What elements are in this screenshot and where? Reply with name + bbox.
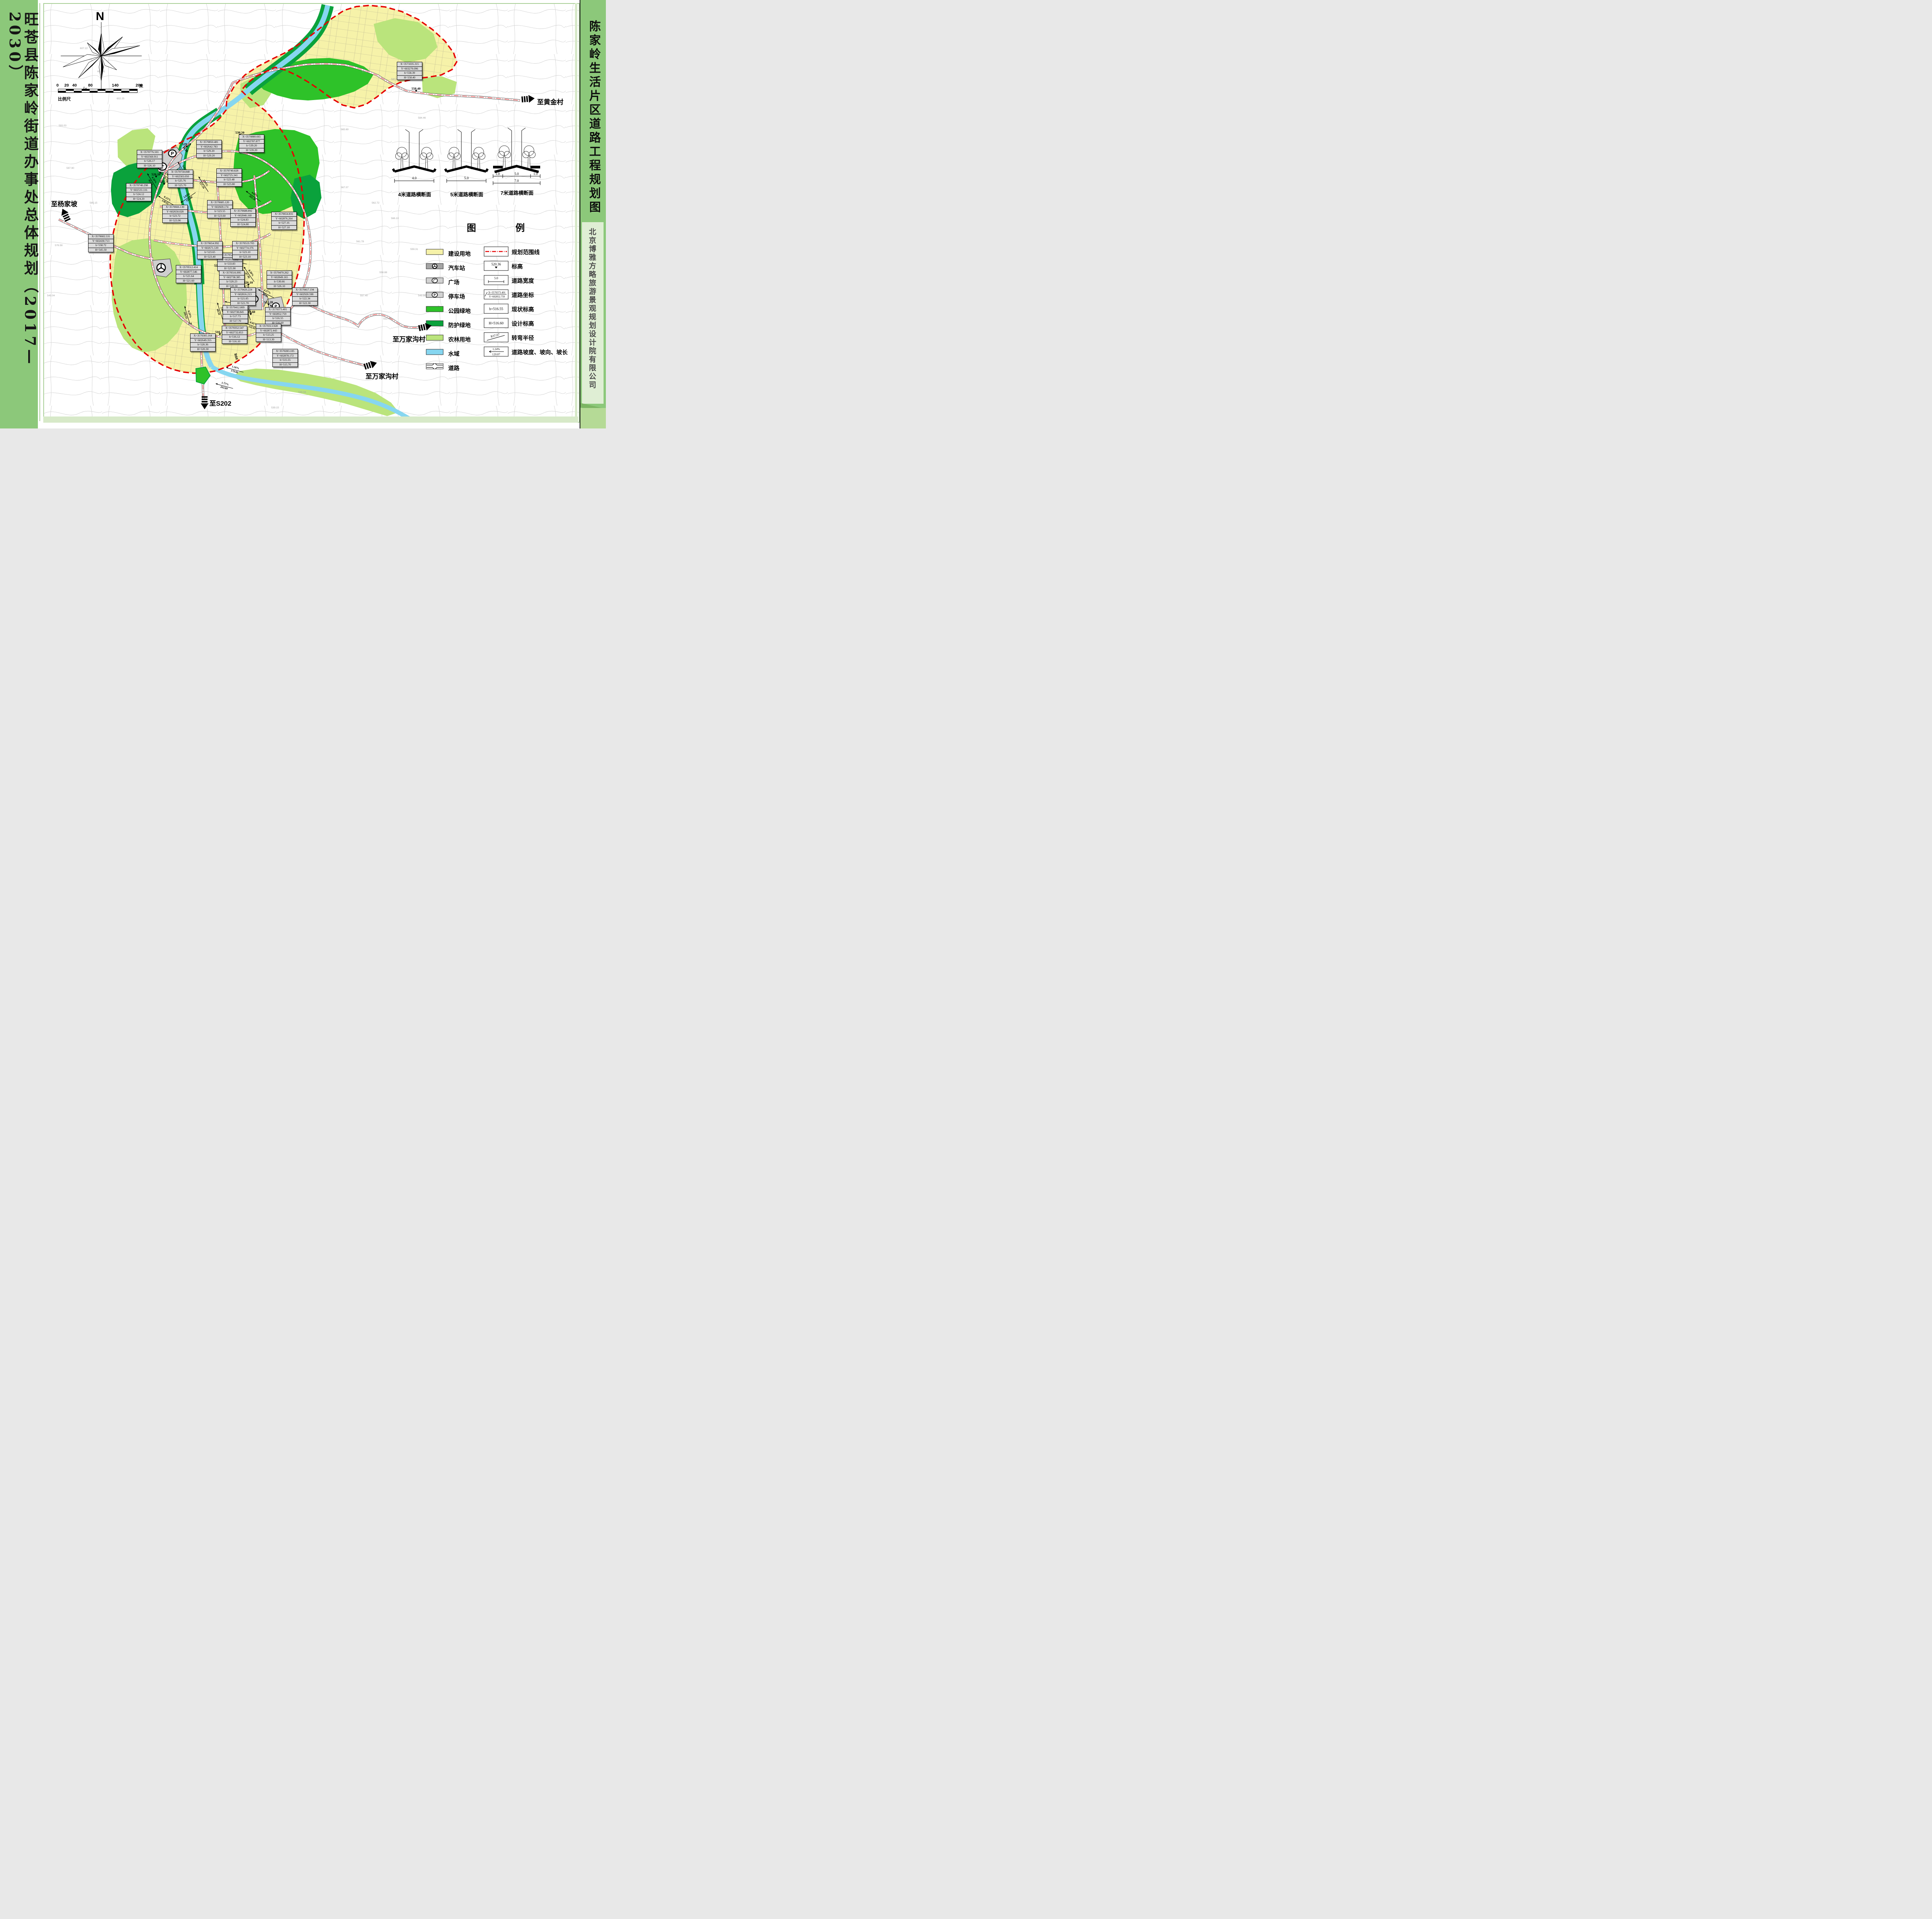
coordinate-box: X=3570688.892Y=602848.168h=524.83H=524.8… <box>230 209 256 227</box>
coordinate-box-row: h=523.48 <box>217 177 241 182</box>
coordinate-box-row: Y=602669.174 <box>207 205 232 209</box>
terrain-elevation-label: 559.31 <box>410 248 418 251</box>
coordinate-box-row: h=523.72 <box>163 214 187 218</box>
coordinate-box-row: h=558.39 <box>397 71 422 75</box>
coordinate-box: X=3570412.809Y=602738.845h=517.73H=517.7… <box>223 305 248 323</box>
svg-text:Y=602852.759: Y=602852.759 <box>489 296 505 298</box>
legend-swatch-parking: P <box>426 292 444 300</box>
legend-swatch-agro-forest <box>426 335 444 343</box>
coordinate-box-row: h=527.16 <box>272 221 296 225</box>
coordinate-box: X=3570740.298Y=602533.116h=524.12H=524.2… <box>126 183 151 201</box>
coordinate-box-row: X=3570602.531 <box>88 235 113 239</box>
coordinate-box-row: X=3571035.315 <box>397 62 422 66</box>
terrain-elevation-label: 576.58 <box>55 244 63 247</box>
legend-label: 道路宽度 <box>512 277 534 285</box>
terrain-elevation-label: 593.03 <box>59 124 66 127</box>
coordinate-box-row: h=524.83 <box>231 218 255 222</box>
legend-label: 转弯半径 <box>512 334 534 342</box>
corner-decoration-light <box>580 408 606 428</box>
coordinate-box-row: h=515.55 <box>273 358 298 362</box>
legend-item-turning-radius: R37.07转弯半径 <box>484 332 577 342</box>
coordinate-box-row: H=517.70 <box>223 319 248 323</box>
coordinate-box-row: H=513.30 <box>256 337 281 342</box>
coordinate-box-row: X=3570740.298 <box>126 184 151 188</box>
legend-item-road-coordinate: X=3570373.401Y=602852.759道路坐标 <box>484 289 577 299</box>
spot-elevation-value: 526.10 <box>151 172 160 176</box>
coordinate-box-row: H=516.10 <box>222 339 247 344</box>
coordinate-box: X=3570880.665Y=602787.877h=539.20H=539.2… <box>239 134 264 153</box>
spot-elevation-value: 525.70 <box>160 180 168 184</box>
svg-text:h=516.55: h=516.55 <box>489 308 503 311</box>
cross-section-caption: 4米道路横断面 <box>389 190 440 198</box>
coordinate-box-row: H=525.90 <box>218 266 242 271</box>
coordinate-box-row: h=520.23 <box>219 279 244 284</box>
coordinate-box: X=3570519.703Y=602774.376h=523.10H=523.1… <box>232 241 258 259</box>
coordinate-box-row: X=3570850.481 <box>197 140 221 144</box>
coordinate-box-row: H=523.90 <box>163 218 187 223</box>
legend-label: 道路坡度、坡向、坡长 <box>512 348 568 356</box>
coordinate-box-row: Y=602732.853 <box>222 330 247 335</box>
coordinate-box-row: Y=602650.028 <box>163 209 187 214</box>
coordinate-box: X=3570470.262Y=602849.165h=530.66H=526.1… <box>267 270 292 289</box>
slope-label: 1.77%263.69 <box>215 380 234 391</box>
coordinate-box-row: h=521.05 <box>231 296 255 301</box>
compass-rose-icon <box>55 15 148 93</box>
coordinate-box-row: H=523.60 <box>207 214 232 218</box>
terrain-elevation-label: 535.04 <box>298 391 306 394</box>
coordinate-box-row: H=521.60 <box>176 279 201 283</box>
cross-section: 4.04米道路横断面 <box>389 124 440 198</box>
coordinate-box-row: h=523.65 <box>197 250 222 255</box>
svg-text:4.0: 4.0 <box>412 177 417 180</box>
destination-label: 至万家沟村 <box>393 334 425 343</box>
legend-label: 广场 <box>448 278 459 286</box>
coordinate-box: X=3570417.194Y=602920.598h=522.34H=522.3… <box>292 287 318 306</box>
coordinate-box: X=3570516.995Y=602738.385h=520.23H=520.3… <box>219 270 245 289</box>
coordinate-box-row: Y=602649.355 <box>190 338 215 343</box>
legend-item-water: 水域 <box>426 348 484 358</box>
legend-symbol-design-elevation: H=516.60 <box>484 318 509 330</box>
scale-tick: 0 <box>56 83 59 88</box>
coordinate-box-row: h=533.83 <box>218 262 242 266</box>
scale-bar: 0204080140200米 比例尺 <box>58 83 158 102</box>
legend-label: 水域 <box>448 350 459 358</box>
legend-item-agro-forest: 农林用地 <box>426 334 484 344</box>
coordinate-box-row: X=3570470.262 <box>267 271 292 275</box>
legend-swatch-plaza: 广 <box>426 277 444 286</box>
scale-tick: 20 <box>65 83 69 88</box>
coordinate-box-row: H=523.40 <box>197 255 222 259</box>
legend-item-construction-land: 建设用地 <box>426 248 484 258</box>
coordinate-box: X=3570512.414Y=602877.546h=521.64H=521.6… <box>176 265 201 283</box>
map-panel: P 广 广 P N <box>43 3 580 423</box>
svg-text:P: P <box>434 293 436 297</box>
svg-text:5.0: 5.0 <box>514 172 519 176</box>
legend-symbol-spot-elevation: 520.36 <box>484 261 509 273</box>
coordinate-box-row: h=525.76 <box>168 178 193 183</box>
coordinate-box-row: X=3570313.928 <box>256 324 281 328</box>
scale-tick: 140 <box>112 83 119 88</box>
coordinate-box-row: X=3570417.194 <box>293 288 317 292</box>
legend-symbol-turning-radius: R37.07 <box>484 332 509 344</box>
coordinate-box: X=3571035.315Y=603270.096h=558.39H=558.4… <box>397 62 422 80</box>
coordinate-box-row: h=513.25 <box>256 333 281 337</box>
slope-label: 1.85%113.40 <box>179 189 197 205</box>
spot-elevation-label: 529.20 <box>182 142 191 148</box>
coordinate-box-row: X=3570373.401 <box>265 308 290 312</box>
legend-label: 公园绿地 <box>448 307 471 315</box>
coordinate-box: X=3570352.547Y=602732.853h=516.12H=516.1… <box>222 326 247 344</box>
coordinate-box-row: H=522.30 <box>293 301 317 306</box>
coordinate-box-row: X=3570352.547 <box>222 326 247 330</box>
spot-elevation-value: 522.20 <box>264 300 273 304</box>
coordinate-box: X=3570685.120Y=602669.174h=523.55H=523.6… <box>207 200 233 218</box>
scale-tick: 40 <box>72 83 77 88</box>
legend-item-road: 道路 <box>426 362 484 372</box>
coordinate-box-row: h=523.10 <box>233 250 257 255</box>
legend-label: 防护绿地 <box>448 321 471 329</box>
radius-label: R60 <box>233 353 238 360</box>
coordinate-box-row: h=521.64 <box>176 274 201 279</box>
spot-elevation-label: 526.10 <box>151 172 160 178</box>
spot-elevation-value: 539.20 <box>235 131 244 134</box>
coordinate-box-row: H=520.30 <box>190 347 215 352</box>
coordinate-box-row: Y=602738.845 <box>223 310 248 314</box>
legend-label: 规划范围线 <box>512 248 540 256</box>
destination-arrow-icon <box>418 322 433 334</box>
frame-strip-left <box>39 3 40 421</box>
coordinate-box-row: X=3570688.892 <box>231 209 255 213</box>
coordinate-box-row: Y=602430.713 <box>88 239 113 243</box>
scale-tick: 80 <box>88 83 93 88</box>
legend-item-plaza: 广广场 <box>426 277 484 287</box>
destination-label: 至万家沟村 <box>366 371 398 381</box>
svg-text:1.0: 1.0 <box>533 172 538 176</box>
legend-label: 道路 <box>448 364 459 372</box>
legend-symbol-existing-elevation: h=516.55 <box>484 304 509 316</box>
legend-label: 设计标高 <box>512 320 534 328</box>
coordinate-box-row: Y=602560.911 <box>137 155 162 159</box>
coordinate-box-row: H=545.50 <box>88 248 113 252</box>
coordinate-box-row: H=558.40 <box>397 75 422 80</box>
coordinate-box: X=3570313.928Y=602872.443h=513.25H=513.3… <box>256 324 281 342</box>
legend-symbol-red-dashed-line <box>484 246 509 258</box>
cross-section-caption: 7米道路横断面 <box>492 189 543 196</box>
coordinate-box-row: Y=602725.341 <box>217 173 241 178</box>
coordinate-box-row: h=516.55 <box>265 316 290 321</box>
cross-section: 1.05.01.07.07米道路横断面 <box>492 122 543 196</box>
legend-item-spot-elevation: 520.36标高 <box>484 261 577 271</box>
cross-section-caption: 5米道路横断面 <box>441 190 492 198</box>
coordinate-box-row: H=527.10 <box>272 225 296 230</box>
destination-label: 至S202 <box>209 398 231 408</box>
terrain-elevation-label: 565.69 <box>341 128 349 131</box>
svg-text:1.0: 1.0 <box>495 172 500 176</box>
terrain-elevation-label: 567.07 <box>341 186 349 189</box>
coordinate-box-row: Y=602876.264 <box>272 216 296 221</box>
terrain-elevation-label: 561.78 <box>356 240 364 243</box>
destination-arrow-icon <box>59 206 73 222</box>
coordinate-box-row: Y=602848.168 <box>231 213 255 218</box>
legend-label: 停车场 <box>448 292 465 301</box>
sheet-title-vertical: 陈家岭生活片区道路工程规划图 <box>585 20 602 221</box>
coordinate-box-row: Y=602852.759 <box>265 312 290 316</box>
svg-text:7.0: 7.0 <box>514 179 519 183</box>
coordinate-box-row: h=517.73 <box>223 314 248 319</box>
coordinate-box-row: X=3570685.120 <box>207 201 232 205</box>
terrain-elevation-label: 566.10 <box>391 217 399 220</box>
coordinate-box: X=3570666.130Y=602650.028h=523.72H=523.9… <box>162 205 188 223</box>
legend-item-road-slope: 1.24%120.87道路坡度、坡向、坡长 <box>484 347 577 357</box>
svg-text:广: 广 <box>433 279 436 282</box>
coordinate-box-row: Y=603270.096 <box>397 66 422 71</box>
coordinate-box-row: H=521.70 <box>231 301 255 306</box>
legend-item-bus-station: 汽车站 <box>426 262 484 272</box>
coordinate-box-row: Y=602878.172 <box>273 354 298 358</box>
slope-label: 3.93%137.26 <box>196 175 211 194</box>
coordinate-box-row: h=524.12 <box>126 192 151 197</box>
coordinate-box-row: Y=602642.783 <box>197 144 221 149</box>
slope-label: 4.61%262.28 <box>244 188 263 204</box>
coordinate-box-row: h=522.34 <box>293 296 317 301</box>
svg-text:1.24%: 1.24% <box>492 347 500 351</box>
coordinate-box-row: Y=602920.598 <box>293 292 317 297</box>
coordinate-box: X=3570283.105Y=602878.172h=515.55H=515.7… <box>272 349 298 367</box>
svg-text:H=516.60: H=516.60 <box>489 322 504 326</box>
spot-elevation-label: 526.10 <box>244 280 253 286</box>
coordinate-box-row: H=525.70 <box>168 183 193 188</box>
legend-item-design-elevation: H=516.60设计标高 <box>484 318 577 328</box>
coordinate-box-row: Y=602816.213 <box>231 292 255 297</box>
coordinate-box-row: H=526.10 <box>137 163 162 168</box>
coordinate-box: X=3570373.401Y=602852.759h=516.55H=516.6… <box>265 307 291 325</box>
road-width-label: 5.0 <box>188 322 192 325</box>
coordinate-box-row: Y=602849.165 <box>267 275 292 280</box>
coordinate-box-row: h=539.20 <box>239 143 264 148</box>
north-label: N <box>96 10 104 23</box>
coordinate-box-row: X=3570654.992 <box>197 241 222 246</box>
terrain-elevation-label: 549.98 <box>418 294 426 297</box>
legend-symbol-road-slope: 1.24%120.87 <box>484 347 509 359</box>
legend-swatch-park-green <box>426 306 444 314</box>
coordinate-box-row: X=3570412.809 <box>223 306 248 310</box>
coordinate-box-row: Y=602774.376 <box>233 246 257 250</box>
company-name-vertical: 北京博雅方略旅游景观规划设计院有限公司 <box>587 228 597 400</box>
terrain-elevation-label: 549.04 <box>47 294 55 297</box>
spot-elevation-value: 529.20 <box>182 142 191 146</box>
coordinate-box-row: Y=602872.443 <box>256 328 281 333</box>
coordinate-box-row: H=523.10 <box>233 255 257 259</box>
coordinate-box-row: H=515.70 <box>273 362 298 367</box>
coordinate-box-row: X=3570426.224 <box>231 288 255 292</box>
coordinate-box-row: X=3570740.828 <box>217 169 241 173</box>
legend-label: 标高 <box>512 262 523 270</box>
coordinate-box-row: X=3570880.665 <box>239 135 264 139</box>
coordinate-box-row: h=558.72 <box>88 243 113 248</box>
spot-elevation-value: 526.10 <box>244 280 253 284</box>
terrain-elevation-label: 584.46 <box>418 117 426 119</box>
svg-text:5.0: 5.0 <box>464 177 469 180</box>
legend-item-protective-green: 防护绿地 <box>426 320 484 330</box>
frame-band-bottom <box>43 416 578 423</box>
coordinate-box-row: H=524.80 <box>231 222 255 227</box>
terrain-elevation-label: 557.40 <box>360 294 368 297</box>
spot-elevation-value: 558.40 <box>412 87 420 90</box>
destination-arrow-icon <box>199 396 209 410</box>
coordinate-box-row: X=3570283.105 <box>273 349 298 354</box>
coordinate-box-row: H=526.10 <box>267 284 292 289</box>
coordinate-box-row: h=523.55 <box>207 209 232 214</box>
coordinate-box-row: h=520.36 <box>190 342 215 347</box>
terrain-elevation-label: 539.15 <box>271 406 279 409</box>
destination-arrow-icon <box>363 359 379 372</box>
legend-symbol-road-coordinate: X=3570373.401Y=602852.759 <box>484 289 509 301</box>
svg-text:X=3570373.401: X=3570373.401 <box>488 292 505 294</box>
legend-symbol-road-width: 5.0 <box>484 275 509 287</box>
coordinate-box-row: X=3570654.831 <box>272 212 296 216</box>
coordinate-box-row: X=3570776.501 <box>137 150 162 155</box>
legend-label: 建设用地 <box>448 250 471 258</box>
legend-item-park-green: 公园绿地 <box>426 305 484 315</box>
coordinate-box-row: Y=602583.050 <box>168 174 193 179</box>
coordinate-box: X=3570776.501Y=602560.911h=526.17H=526.1… <box>137 150 162 168</box>
legend-item-red-dashed-line: 规划范围线 <box>484 246 577 257</box>
spot-elevation-label: 525.70 <box>160 180 168 185</box>
terrain-elevation-label: 552.48 <box>383 318 391 320</box>
legend-swatch-road <box>426 363 444 371</box>
destination-arrow-icon <box>521 95 535 105</box>
legend-label: 现状标高 <box>512 305 534 313</box>
scale-unit: 米 <box>139 83 143 89</box>
destination-label: 至黄金村 <box>537 97 563 106</box>
legend-item-existing-elevation: h=516.55现状标高 <box>484 304 577 314</box>
coordinate-box-row: H=523.80 <box>217 182 241 187</box>
coordinate-box-row: X=3570516.995 <box>219 271 244 275</box>
coordinate-box-row: X=3570758.848 <box>168 170 193 174</box>
coordinate-box-row: Y=602738.385 <box>219 275 244 280</box>
coordinate-box-row: h=529.20 <box>197 149 221 153</box>
spot-elevation-label: 558.40 <box>412 87 420 92</box>
legend-item-road-width: 5.0道路宽度 <box>484 275 577 285</box>
coordinate-box: X=3570305.164Y=602649.355h=520.36H=520.3… <box>190 333 216 352</box>
terrain-elevation-label: 585.15 <box>90 202 97 204</box>
legend-swatch-construction-land <box>426 249 444 257</box>
coordinate-box-row: h=526.17 <box>137 159 162 163</box>
coordinate-box-row: Y=602877.546 <box>176 270 201 274</box>
spot-elevation-label: 522.20 <box>264 300 273 306</box>
coordinate-box: X=3570850.481Y=602642.783h=529.20H=529.2… <box>196 140 222 158</box>
coordinate-box: X=3570426.224Y=602816.213h=521.05H=521.7… <box>230 287 256 306</box>
terrain-elevation-label: 558.88 <box>379 271 387 274</box>
destination-label: 至杨家坡 <box>51 199 77 208</box>
coordinate-box-row: H=539.20 <box>239 148 264 153</box>
coordinate-box-row: X=3570305.164 <box>190 334 215 338</box>
coordinate-box-row: Y=602671.539 <box>197 246 222 250</box>
terrain-elevation-label: 571.16 <box>362 70 370 73</box>
svg-text:120.87: 120.87 <box>492 353 500 356</box>
coordinate-box: X=3570654.992Y=602671.539h=523.65H=523.4… <box>197 241 223 259</box>
cross-section: 5.05米道路横断面 <box>441 124 492 198</box>
coordinate-box-row: Y=602787.877 <box>239 139 264 144</box>
legend-swatch-water <box>426 349 444 357</box>
coordinate-box: X=3570654.831Y=602876.264h=527.16H=527.1… <box>271 212 297 230</box>
coordinate-box-row: X=3570512.414 <box>176 265 201 270</box>
coordinate-box-row: h=530.66 <box>267 279 292 284</box>
legend-item-parking: P停车场 <box>426 291 484 301</box>
svg-text:520.36: 520.36 <box>492 262 501 266</box>
terrain-elevation-label: 562.72 <box>372 202 379 204</box>
legend-label: 道路坐标 <box>512 291 534 299</box>
legend-title: 图 例 <box>464 220 534 234</box>
frame-strip-right <box>575 3 577 421</box>
coordinate-box: X=3570602.531Y=602430.713h=558.72H=545.5… <box>88 234 114 252</box>
terrain-elevation-label: 597.90 <box>66 167 74 170</box>
coordinate-box-row: X=3570519.703 <box>233 241 257 246</box>
scale-bar-strip <box>58 89 140 93</box>
coordinate-box-row: X=3570666.130 <box>163 205 187 209</box>
coordinate-box: X=3570740.828Y=602725.341h=523.48H=523.8… <box>216 168 242 187</box>
legend-label: 汽车站 <box>448 264 465 272</box>
coordinate-box-row: H=529.20 <box>197 153 221 158</box>
scale-bar-label: 比例尺 <box>58 96 158 102</box>
planning-sheet: { "titles": { "left_banner": "旺苍县陈家岭街道办事… <box>0 0 606 428</box>
coordinate-box: X=3570758.848Y=602583.050h=525.76H=525.7… <box>168 170 193 188</box>
legend-label: 农林用地 <box>448 335 471 343</box>
coordinate-box-row: Y=602533.116 <box>126 188 151 192</box>
left-title-banner: 旺苍县陈家岭街道办事处总体规划（2017—2030） <box>0 0 38 428</box>
legend-swatch-bus-station <box>426 263 444 271</box>
slope-label: 1.56%179.06 <box>225 364 244 375</box>
plan-title-vertical: 旺苍县陈家岭街道办事处总体规划（2017—2030） <box>7 12 38 417</box>
svg-text:5.0: 5.0 <box>494 277 498 280</box>
coordinate-box-row: h=516.12 <box>222 335 247 339</box>
coordinate-box-row: H=524.20 <box>126 197 151 201</box>
